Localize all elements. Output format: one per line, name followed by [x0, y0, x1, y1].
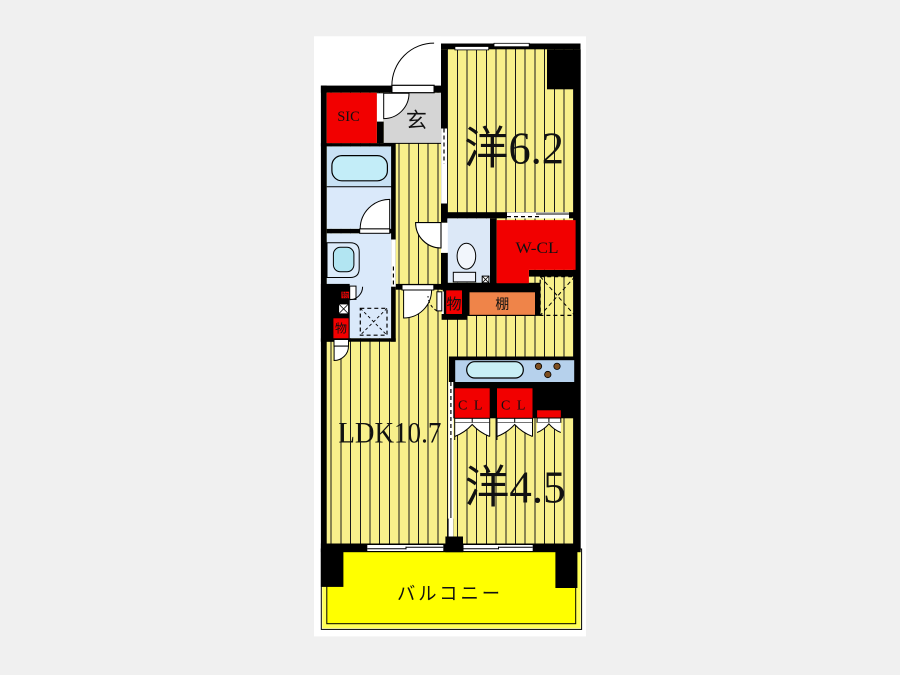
svg-text:物: 物 — [335, 322, 347, 336]
svg-text:棚: 棚 — [495, 297, 509, 313]
svg-text:洋4.5: 洋4.5 — [465, 463, 566, 513]
svg-text:SIC: SIC — [337, 109, 360, 125]
svg-text:物: 物 — [342, 291, 349, 300]
svg-text:LDK10.7: LDK10.7 — [338, 416, 441, 449]
svg-text:玄: 玄 — [406, 109, 427, 133]
svg-text:W-CL: W-CL — [516, 240, 559, 257]
svg-text:C L: C L — [501, 399, 527, 414]
svg-text:物: 物 — [446, 296, 461, 313]
svg-text:バルコニー: バルコニー — [397, 585, 503, 605]
svg-text:C L: C L — [458, 399, 484, 414]
svg-text:洋6.2: 洋6.2 — [464, 124, 564, 174]
